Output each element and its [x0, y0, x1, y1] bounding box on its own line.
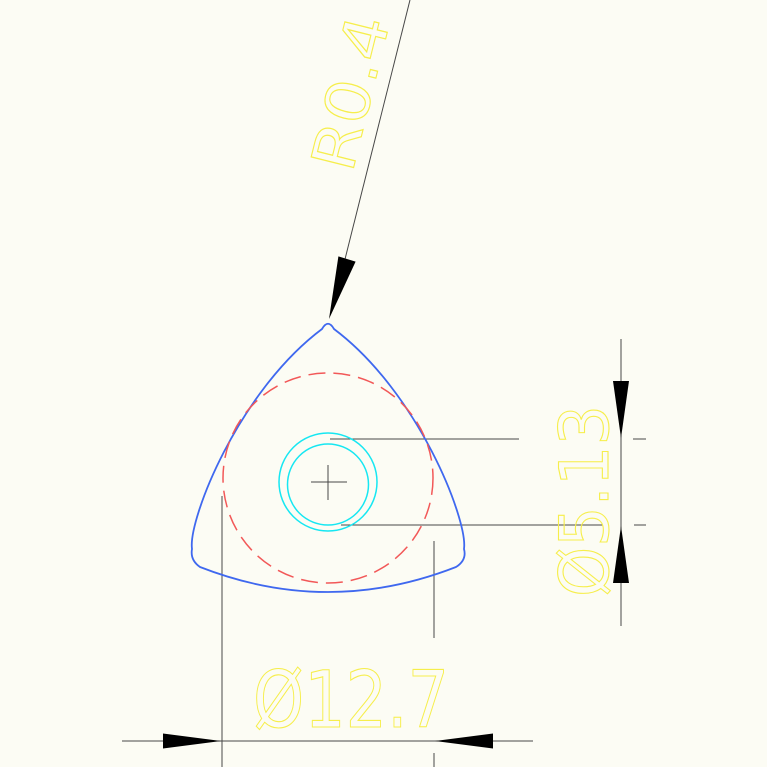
drawing-background — [0, 0, 767, 767]
cad-viewport[interactable]: R0.4 Ø5.13 Ø12.7 — [0, 0, 767, 767]
horizontal-dimension-label[interactable]: Ø12.7 — [253, 656, 449, 746]
vertical-dimension-label[interactable]: Ø5.13 — [546, 405, 625, 597]
drawing-canvas[interactable]: R0.4 Ø5.13 Ø12.7 — [0, 0, 767, 767]
